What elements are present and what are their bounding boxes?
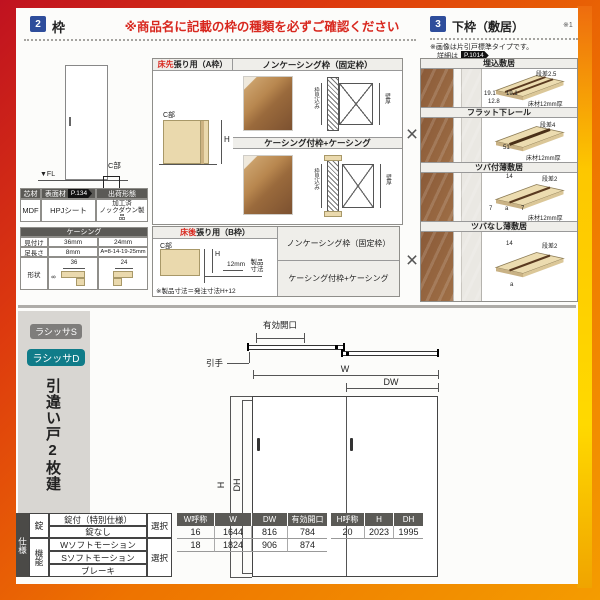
plan-cap — [247, 343, 249, 351]
spec-row-w-soft: Wソフトモーション — [49, 538, 147, 551]
a-frame-title: 床先張り用（A枠） — [153, 59, 233, 71]
catalog-page: 2 枠 ※商品名に記載の枠の種類を必ずご確認ください ▼FL C部 芯材 表面材… — [16, 8, 578, 584]
casing-row1-label: 見付け — [20, 237, 48, 247]
spec-row-brake: ブレーキ — [49, 564, 147, 577]
w-table-cell: 784 — [288, 526, 327, 539]
a-frame-fl-line — [159, 164, 217, 165]
cross-icon: × — [403, 249, 421, 273]
dw-dim-label: DW — [380, 377, 402, 386]
w-table-header-w: W — [215, 513, 252, 526]
opening-tick-right — [304, 333, 305, 343]
h-table-cell: 1995 — [394, 526, 423, 539]
spec-row-s-soft: Sソフトモーション — [49, 551, 147, 564]
a-frame-casing-tab-top — [324, 155, 342, 161]
casing-shape-36-leg — [76, 278, 85, 286]
h-table-header-dh: DH — [394, 513, 423, 526]
casing-row1-v1: 36mm — [48, 237, 98, 247]
sill-row4-header: ツバなし薄敷居 — [421, 221, 577, 232]
handle-leader-h — [227, 363, 249, 364]
materials-value-core: MDF — [20, 199, 41, 222]
materials-header-core: 芯材 — [20, 188, 41, 199]
a-frame-casing-photo — [243, 155, 293, 215]
w-tick — [438, 370, 439, 379]
a-frame-wall-hatch-1 — [327, 77, 339, 131]
section3-number: 3 — [430, 16, 446, 32]
b-frame-product-dim-label: 製品寸法 — [249, 256, 265, 276]
a-frame-c-label: C部 — [163, 110, 175, 120]
sill-row2-photo — [421, 118, 482, 162]
photo-floor-planks — [421, 69, 481, 107]
casing-row2-v1: 8mm — [48, 247, 98, 257]
a-frame-xsection-2 — [342, 164, 374, 208]
dw-tick — [346, 383, 347, 392]
sill-row4-top: 14 — [506, 241, 513, 247]
sill-row2-header: フラット下レール — [421, 107, 577, 118]
b-frame-title: 床後張り用（B枠） — [153, 227, 277, 239]
sill-row3-header: ツバ付薄敷居 — [421, 162, 577, 173]
section2-warning: ※商品名に記載の枠の種類を必ずご確認ください — [92, 16, 432, 35]
spec-lock-label: 錠 — [29, 513, 49, 538]
section-divider-band — [18, 305, 576, 308]
a-frame-noncasing-header: ノンケーシング枠（固定枠） — [233, 59, 402, 71]
sill-row3-d2: a — [505, 206, 508, 212]
sill-row1-photo — [421, 69, 482, 107]
b-frame-door-edge — [204, 249, 205, 283]
a-frame-wall-label-1: 壁厚 — [383, 93, 391, 104]
b-frame-section-block — [160, 249, 200, 276]
a-frame-title-red: 床先 — [158, 59, 174, 70]
h-ext-top — [230, 396, 252, 397]
a-frame-depth-dim-2 — [321, 164, 322, 208]
casing-dimline-36 — [63, 268, 85, 269]
page-ref-badge-134: P.134 — [68, 189, 92, 198]
catalog-page-background: 2 枠 ※商品名に記載の枠の種類を必ずご確認ください ▼FL C部 芯材 表面材… — [0, 0, 600, 600]
a-frame-casing-tab-bottom — [324, 211, 342, 217]
a-frame-depth-dim-1 — [321, 83, 322, 125]
opening-label: 有効開口 — [242, 320, 318, 330]
section2-title: 枠 — [52, 17, 65, 36]
sill-row3-d3: 7 — [521, 206, 524, 212]
casing-row2-v2: A=8-14-19-25mm — [98, 247, 148, 257]
dw-dimline — [346, 388, 438, 389]
fl-label: ▼FL — [40, 171, 55, 178]
w-table-header-opening: 有効開口 — [288, 513, 327, 526]
a-frame-wall-dim-1 — [379, 83, 380, 125]
series-badge-lasissa-d: ラシッサD — [27, 349, 85, 366]
w-table-header-dw: DW — [252, 513, 288, 526]
casing-shape-label: 形状 — [20, 257, 48, 290]
a-frame-wall-hatch-2 — [327, 160, 339, 212]
a-frame-wall-label-2: 壁厚 — [384, 174, 392, 185]
casing-dim-24: 24 — [115, 259, 133, 267]
a-frame-h-dimline — [221, 120, 222, 164]
w-table-cell: 18 — [177, 539, 215, 552]
cross-icon: × — [403, 123, 421, 147]
sill-row4-d1: a — [510, 282, 513, 288]
a-frame-section-block — [163, 120, 209, 164]
sill-row1-step: 段差2.5 — [536, 69, 556, 78]
b-frame-title-red: 床後 — [180, 227, 196, 238]
spec-row-lock-none: 錠なし — [49, 526, 147, 538]
door-panel-divider — [346, 397, 347, 576]
handle-label: 引手 — [206, 357, 223, 369]
h-table-cell: 2023 — [365, 526, 394, 539]
section3-title: 下枠（敷居） — [452, 18, 524, 35]
materials-header-shipping: 出荷形態 — [96, 188, 148, 199]
b-frame-casing-cell: ケーシング付枠+ケーシング — [277, 261, 399, 296]
sill-row4-diagram — [486, 248, 572, 278]
a-frame-depth-label-1: 枠見込み — [312, 87, 320, 109]
door-handle-right — [350, 438, 353, 451]
b-frame-h-label: H — [215, 251, 220, 258]
sill-row3-photo — [421, 173, 482, 221]
w-table-cell: 1644 — [215, 526, 252, 539]
dh-ext-bottom — [242, 573, 252, 574]
b-frame-baseline — [204, 276, 262, 277]
b-frame-title-rest: 張り用（B枠） — [196, 227, 250, 238]
b-frame-h-dimline — [212, 249, 213, 273]
plan-panel-right — [342, 351, 438, 356]
a-frame-xsection-1 — [339, 83, 373, 125]
sill-row2-diagram — [486, 122, 572, 152]
materials-value-surface: HPJシート — [41, 199, 96, 222]
sill-row3-step: 段差2 — [542, 174, 557, 183]
plan-handle-dot — [335, 345, 338, 349]
a-frame-h-label: H — [224, 135, 230, 144]
dh-dim-label: DH — [232, 476, 242, 494]
plan-handle-dot — [346, 352, 349, 356]
a-frame-title-rest: 張り用（A枠） — [174, 59, 228, 70]
sill-row3-diagram — [486, 180, 572, 210]
casing-table-title: ケーシング — [20, 227, 148, 237]
b-frame-note: ※製品寸法＝発注寸法H+12 — [156, 285, 236, 295]
h-ext-bottom — [230, 577, 252, 578]
photo-floor-planks — [421, 173, 481, 221]
dw-tick — [438, 383, 439, 392]
sill-row2-d1: 51 — [503, 145, 510, 151]
w-table-cell: 16 — [177, 526, 215, 539]
sill-row4-photo — [421, 232, 482, 301]
section3-ref-mark: ※1 — [563, 21, 573, 29]
casing-shape-cell-36: 36 8 — [48, 257, 98, 290]
door-handle-mark — [69, 117, 71, 126]
b-frame-noncasing-cell: ノンケーシング枠（固定枠） — [277, 227, 399, 261]
product-title-vertical: 引違い戸2枚建 — [42, 378, 63, 513]
plan-panel-left — [248, 345, 344, 350]
h-table-cell: 20 — [331, 526, 365, 539]
sill-row3-top: 14 — [506, 174, 513, 180]
materials-header-surface-label: 表面材 — [45, 189, 66, 199]
casing-row2-label: 足長さ — [20, 247, 48, 257]
section2-number: 2 — [30, 16, 46, 32]
materials-header-surface: 表面材 P.134 — [41, 188, 96, 199]
w-dim-label: W — [337, 364, 353, 373]
plan-cap — [341, 349, 343, 357]
handle-leader-v — [249, 352, 250, 363]
sill-row1-header: 埋込敷居 — [421, 59, 577, 69]
plan-cap — [437, 349, 439, 357]
a-frame-wall-dim-2 — [380, 164, 381, 208]
a-frame-noncasing-photo — [243, 76, 293, 131]
spec-func-label: 機能 — [29, 538, 49, 577]
plan-cap — [343, 343, 345, 351]
w-table-cell: 816 — [252, 526, 288, 539]
w-dimline — [253, 375, 438, 376]
casing-dimline-24 — [115, 268, 133, 269]
right-yellow-stripe — [577, 6, 592, 588]
a-frame-depth-label-2: 枠見込み — [312, 168, 320, 190]
sill-row1-d1: 19.1 — [484, 91, 496, 97]
a-frame-casing-diagram: 枠見込み 壁厚 — [312, 154, 394, 218]
sill-row2-floor: 床材12mm厚 — [526, 153, 561, 162]
a-frame-block-edge — [200, 121, 204, 165]
casing-dim-36: 36 — [63, 259, 85, 267]
section2-divider — [24, 39, 416, 41]
sill-row1-d3: 12.8 — [488, 99, 500, 105]
w-table-cell: 906 — [252, 539, 288, 552]
spec-group-label: 仕様 — [16, 513, 29, 577]
w-table-cell: 874 — [288, 539, 327, 552]
h-dim-label: H — [216, 478, 226, 492]
w-tick — [253, 370, 254, 379]
casing-row1-v2: 24mm — [98, 237, 148, 247]
spec-select-func: 選択 — [147, 538, 172, 577]
casing-side-8: 8 — [52, 275, 58, 278]
a-frame-noncasing-diagram: 枠見込み 壁厚 — [312, 75, 394, 133]
sill-row2-step: 段差4 — [540, 120, 555, 129]
sill-row1-diagram — [486, 71, 572, 101]
c-detail-label: C部 — [108, 160, 121, 171]
b-frame-12mm-label: 12mm — [227, 261, 245, 268]
spec-row-lock-special: 錠付（特別仕様） — [49, 513, 147, 526]
b-frame-12mm-dimline — [223, 270, 243, 271]
h-table-header-hname: H呼称 — [331, 513, 365, 526]
door-handle-left — [257, 438, 260, 451]
series-badge-lasissa-s: ラシッサS — [30, 324, 82, 339]
photo-floor-planks — [421, 232, 481, 301]
sill-row3-d1: 7 — [489, 206, 492, 212]
sill-row4-step: 段差2 — [542, 241, 557, 250]
section3-divider — [430, 38, 578, 40]
w-table-header-wname: W呼称 — [177, 513, 215, 526]
spec-select-lock: 選択 — [147, 513, 172, 538]
dh-ext-top — [242, 400, 252, 401]
casing-shape-cell-24: 24 — [98, 257, 148, 290]
h-table-header-h: H — [365, 513, 394, 526]
w-table-cell: 1824 — [215, 539, 252, 552]
sill-row1-d2: 19.1 — [506, 91, 518, 97]
a-frame-casing-header: ケーシング付枠+ケーシング — [233, 137, 402, 149]
casing-shape-36-bar — [61, 271, 85, 278]
door-elevation-small — [65, 65, 108, 180]
materials-value-shipping: 加工済 ノックダウン製品 — [96, 199, 148, 222]
casing-shape-24-bar — [113, 271, 133, 278]
opening-dimline — [256, 338, 304, 339]
casing-shape-24-leg — [113, 278, 122, 286]
photo-floor-planks — [421, 118, 481, 162]
